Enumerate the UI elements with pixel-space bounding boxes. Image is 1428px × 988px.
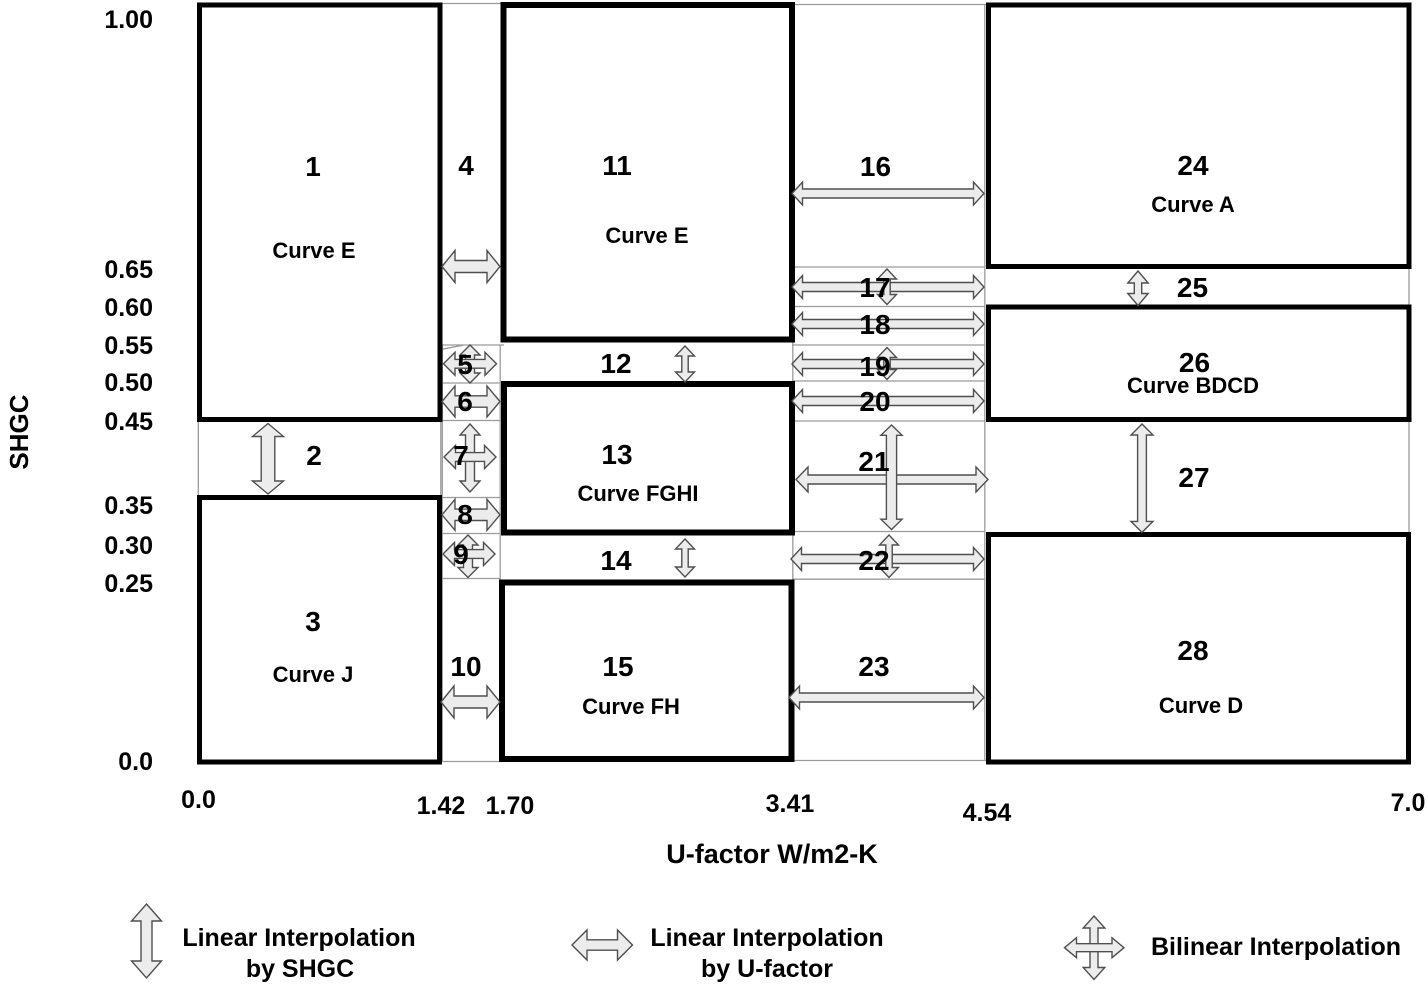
svg-text:16: 16 <box>860 151 891 182</box>
svg-text:4.54: 4.54 <box>963 799 1012 827</box>
svg-text:25: 25 <box>1177 272 1208 303</box>
svg-text:SHGC: SHGC <box>4 394 34 469</box>
svg-text:Curve E: Curve E <box>605 223 688 248</box>
svg-text:4: 4 <box>458 150 474 181</box>
svg-text:8: 8 <box>457 499 473 530</box>
svg-text:20: 20 <box>859 386 890 417</box>
svg-text:7: 7 <box>453 440 469 471</box>
svg-text:1.70: 1.70 <box>486 792 535 820</box>
svg-text:14: 14 <box>600 545 632 576</box>
svg-text:Curve J: Curve J <box>273 662 354 687</box>
svg-text:19: 19 <box>859 351 890 382</box>
svg-text:Linear Interpolation: Linear Interpolation <box>650 924 883 952</box>
svg-text:0.30: 0.30 <box>104 532 153 560</box>
svg-text:Curve FGHI: Curve FGHI <box>577 481 698 506</box>
svg-text:0.55: 0.55 <box>104 332 153 360</box>
svg-text:27: 27 <box>1178 462 1209 493</box>
svg-text:5: 5 <box>457 349 473 380</box>
svg-text:6: 6 <box>457 386 473 417</box>
svg-text:3.41: 3.41 <box>766 790 815 818</box>
svg-text:2: 2 <box>306 440 322 471</box>
svg-text:U-factor W/m2-K: U-factor W/m2-K <box>666 839 878 869</box>
svg-text:10: 10 <box>450 651 481 682</box>
svg-text:23: 23 <box>858 651 889 682</box>
svg-text:Curve BDCD: Curve BDCD <box>1127 373 1259 398</box>
svg-text:0.0: 0.0 <box>181 786 216 814</box>
svg-text:1: 1 <box>305 151 321 182</box>
svg-text:Bilinear Interpolation: Bilinear Interpolation <box>1151 933 1401 961</box>
svg-text:by SHGC: by SHGC <box>246 955 354 983</box>
svg-text:3: 3 <box>305 606 321 637</box>
svg-text:0.35: 0.35 <box>104 492 153 520</box>
svg-text:0.25: 0.25 <box>104 570 153 598</box>
svg-text:28: 28 <box>1177 635 1208 666</box>
svg-text:Curve D: Curve D <box>1159 693 1243 718</box>
svg-text:17: 17 <box>859 272 890 303</box>
svg-text:13: 13 <box>601 439 632 470</box>
svg-text:11: 11 <box>602 150 632 181</box>
svg-text:24: 24 <box>1177 150 1209 181</box>
svg-text:1.42: 1.42 <box>417 792 466 820</box>
svg-text:7.0: 7.0 <box>1391 789 1426 817</box>
svg-text:12: 12 <box>600 348 631 379</box>
svg-text:22: 22 <box>858 545 889 576</box>
svg-text:0.45: 0.45 <box>104 408 153 436</box>
svg-text:Curve FH: Curve FH <box>582 694 680 719</box>
svg-text:by U-factor: by U-factor <box>701 955 833 983</box>
svg-text:Linear Interpolation: Linear Interpolation <box>182 924 415 952</box>
svg-text:0.65: 0.65 <box>104 256 153 284</box>
svg-text:1.00: 1.00 <box>104 6 153 34</box>
svg-text:15: 15 <box>602 651 633 682</box>
svg-text:0.0: 0.0 <box>118 748 153 776</box>
svg-text:0.60: 0.60 <box>104 294 153 322</box>
svg-text:9: 9 <box>453 539 469 570</box>
svg-text:Curve A: Curve A <box>1151 192 1235 217</box>
svg-text:21: 21 <box>858 446 889 477</box>
svg-text:0.50: 0.50 <box>104 369 153 397</box>
svg-text:18: 18 <box>859 309 890 340</box>
svg-text:Curve E: Curve E <box>272 238 355 263</box>
